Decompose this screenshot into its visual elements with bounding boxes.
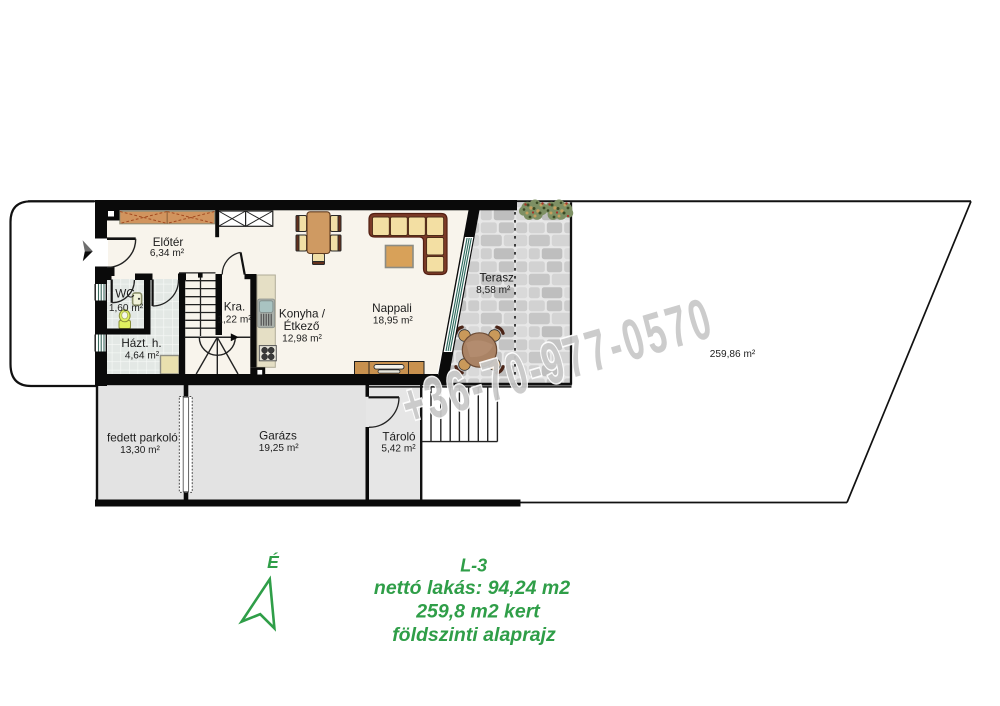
svg-text:Nappali: Nappali	[372, 302, 412, 315]
svg-text:19,25 m²: 19,25 m²	[259, 443, 299, 454]
svg-text:Étkező: Étkező	[284, 320, 320, 333]
svg-text:6,34 m²: 6,34 m²	[150, 248, 185, 259]
svg-text:4,64 m²: 4,64 m²	[125, 351, 160, 362]
svg-text:13,30 m²: 13,30 m²	[120, 445, 160, 456]
svg-text:8,58 m²: 8,58 m²	[476, 285, 511, 296]
svg-text:Házt. h.: Házt. h.	[121, 337, 161, 350]
svg-text:földszinti alaprajz: földszinti alaprajz	[392, 624, 556, 646]
svg-text:É: É	[267, 551, 280, 572]
svg-text:12,98 m²: 12,98 m²	[282, 334, 322, 345]
svg-text:Kra.: Kra.	[224, 301, 245, 314]
svg-text:259,86 m²: 259,86 m²	[710, 349, 756, 360]
svg-text:L-3: L-3	[460, 556, 487, 576]
svg-text:fedett parkoló: fedett parkoló	[107, 432, 178, 445]
svg-text:1,22 m²: 1,22 m²	[217, 315, 252, 326]
svg-text:1,60 m²: 1,60 m²	[109, 303, 144, 314]
svg-text:18,95 m²: 18,95 m²	[373, 316, 413, 327]
svg-text:Garázs: Garázs	[259, 430, 297, 443]
svg-text:Konyha /: Konyha /	[279, 308, 326, 321]
svg-text:nettó lakás: 94,24 m2: nettó lakás: 94,24 m2	[374, 577, 570, 599]
svg-text:Terasz: Terasz	[479, 272, 514, 285]
svg-text:WC: WC	[115, 288, 134, 301]
svg-text:259,8 m2 kert: 259,8 m2 kert	[415, 601, 541, 623]
svg-text:5,42 m²: 5,42 m²	[381, 444, 416, 455]
